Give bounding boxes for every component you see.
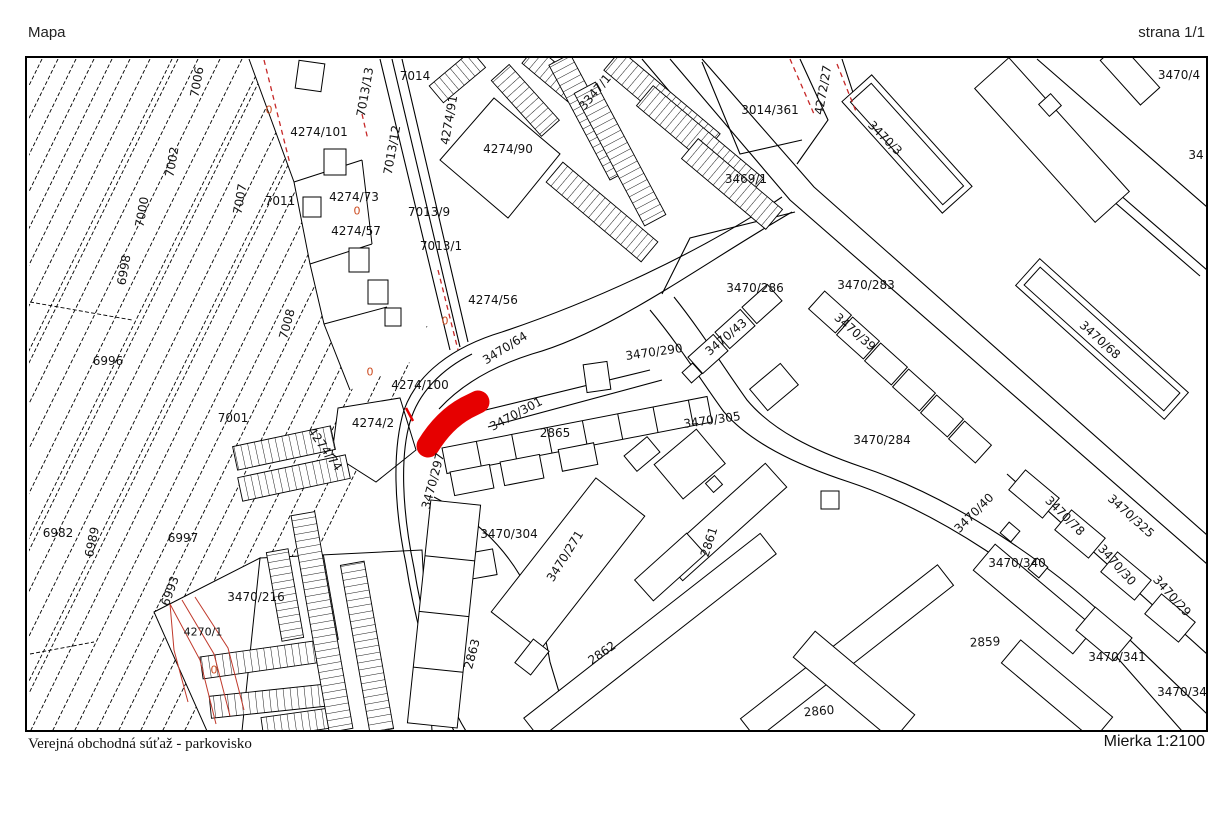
buildings — [295, 58, 1195, 730]
highlighted-parcel — [406, 402, 478, 446]
map-canvas: 7006700270006998700770117008699670016982… — [25, 56, 1208, 732]
cadastral-map-page: { "page": { "title": "Mapa", "page_indic… — [0, 0, 1231, 829]
page-title: Mapa — [28, 24, 66, 41]
page-indicator: strana 1/1 — [1138, 24, 1205, 41]
scale-label: Mierka 1:2100 — [1104, 733, 1205, 751]
map-linework — [27, 58, 1206, 730]
map-subtitle: Verejná obchodná súťaž - parkovisko — [28, 736, 252, 753]
